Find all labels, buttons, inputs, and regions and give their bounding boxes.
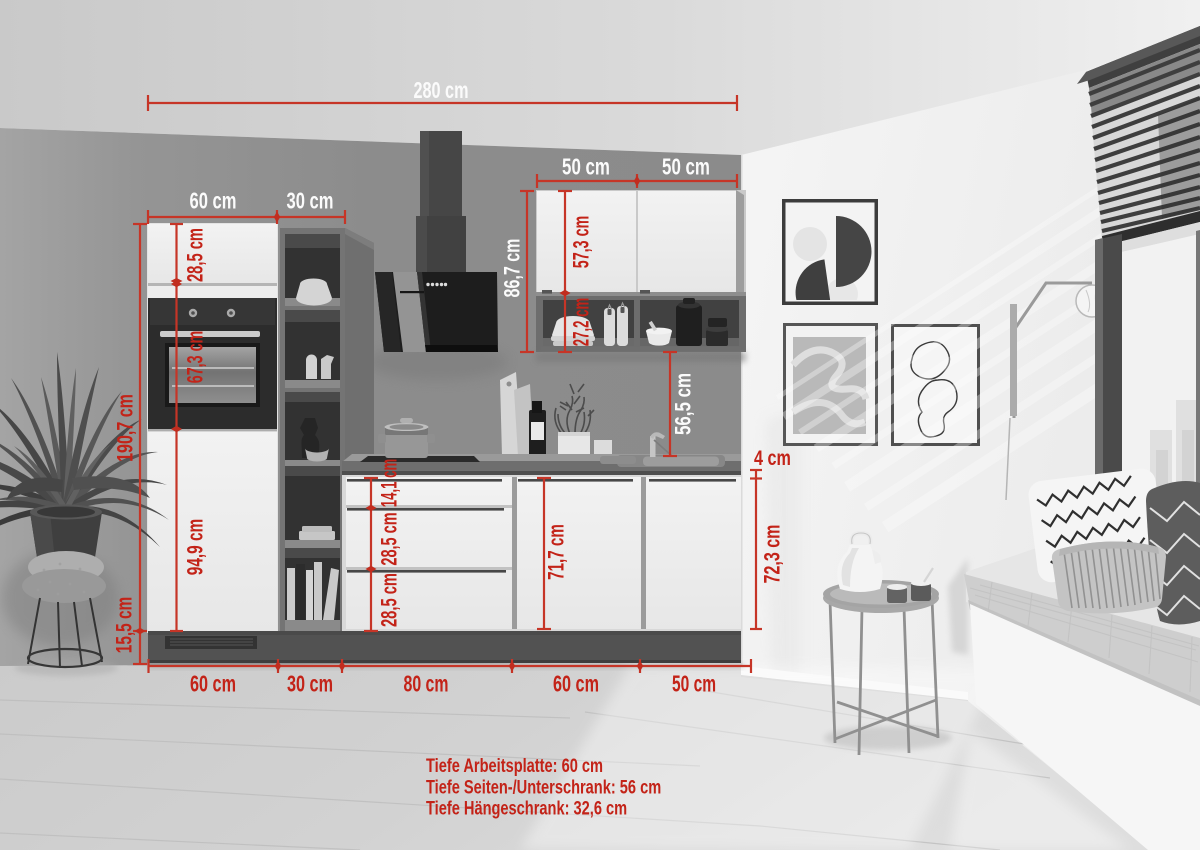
svg-text:60 cm: 60 cm xyxy=(190,672,236,697)
svg-text:67,3 cm: 67,3 cm xyxy=(182,331,207,383)
svg-text:56,5 cm: 56,5 cm xyxy=(671,373,696,435)
svg-text:50 cm: 50 cm xyxy=(662,155,710,180)
svg-text:Tiefe Hängeschrank: 32,6 cm: Tiefe Hängeschrank: 32,6 cm xyxy=(426,796,627,819)
svg-text:28,5 cm: 28,5 cm xyxy=(376,512,401,565)
svg-text:60 cm: 60 cm xyxy=(553,672,599,697)
svg-text:80 cm: 80 cm xyxy=(404,672,449,698)
svg-text:50 cm: 50 cm xyxy=(672,672,716,698)
svg-text:94,9 cm: 94,9 cm xyxy=(184,519,208,575)
svg-text:30 cm: 30 cm xyxy=(287,189,334,214)
svg-text:86,7 cm: 86,7 cm xyxy=(501,239,525,298)
svg-text:28,5 cm: 28,5 cm xyxy=(377,573,402,627)
svg-text:71,7 cm: 71,7 cm xyxy=(545,524,569,580)
svg-text:28,5 cm: 28,5 cm xyxy=(183,228,208,282)
svg-text:60 cm: 60 cm xyxy=(190,189,237,214)
svg-text:27,2 cm: 27,2 cm xyxy=(569,298,593,346)
svg-text:4 cm: 4 cm xyxy=(754,446,791,470)
svg-text:14,1 cm: 14,1 cm xyxy=(377,459,401,507)
svg-text:Tiefe Arbeitsplatte: 60 cm: Tiefe Arbeitsplatte: 60 cm xyxy=(426,754,603,777)
svg-text:72,3 cm: 72,3 cm xyxy=(761,525,785,584)
svg-text:Tiefe Seiten-/Unterschrank: 56: Tiefe Seiten-/Unterschrank: 56 cm xyxy=(426,775,661,798)
svg-text:190,7 cm: 190,7 cm xyxy=(114,394,138,462)
svg-text:50 cm: 50 cm xyxy=(562,155,610,180)
svg-text:57,3 cm: 57,3 cm xyxy=(568,216,593,268)
svg-text:30 cm: 30 cm xyxy=(287,672,333,697)
svg-text:15,5 cm: 15,5 cm xyxy=(113,597,137,653)
svg-text:280 cm: 280 cm xyxy=(414,78,469,103)
